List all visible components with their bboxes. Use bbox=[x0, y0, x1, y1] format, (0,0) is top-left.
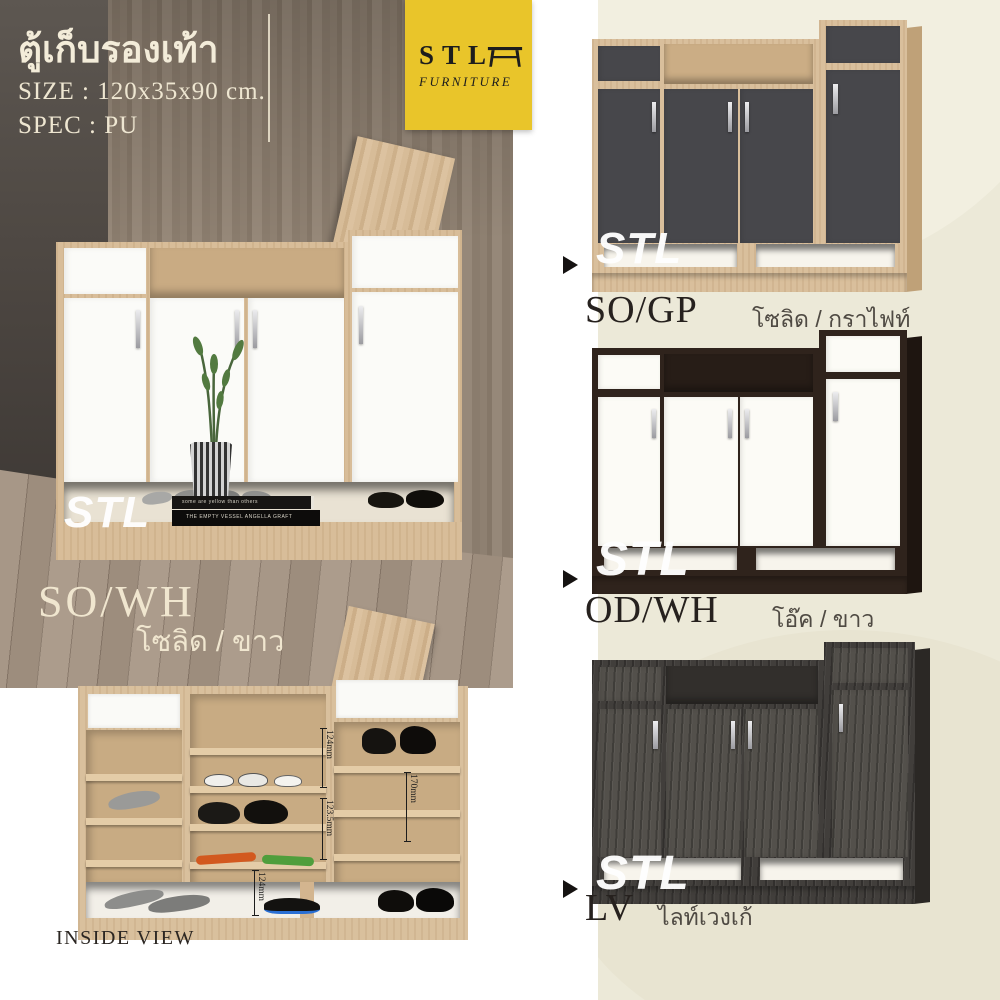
dimension-124mm: 124mm bbox=[322, 728, 323, 788]
door-left bbox=[598, 89, 660, 243]
variant-code: OD/WH bbox=[585, 588, 719, 632]
open-compartment bbox=[760, 858, 903, 880]
dark-shoe bbox=[368, 492, 404, 508]
table-icon bbox=[487, 44, 523, 68]
black-shoe bbox=[198, 802, 240, 824]
sneaker bbox=[274, 775, 302, 787]
book-spine: some are yellow than others bbox=[172, 496, 314, 509]
main-product-name-th: โซลิด / ขาว bbox=[136, 618, 284, 664]
dimension-123-5mm: 123.5mm bbox=[322, 798, 323, 860]
dimension-label: 124mm bbox=[256, 872, 266, 901]
sandal bbox=[264, 898, 320, 914]
stl-furniture-logo: STL FURNITURE bbox=[405, 0, 532, 130]
variant-code: LV bbox=[585, 886, 634, 930]
size-line: SIZE : 120x35x90 cm. bbox=[18, 78, 266, 106]
book-spine: THE EMPTY VESSEL ANGELLA GRAFT bbox=[172, 510, 320, 526]
dark-shoe bbox=[406, 490, 444, 508]
shelf bbox=[334, 854, 460, 861]
dimension-label: 123.5mm bbox=[324, 800, 334, 836]
variant-name-th: โอ๊ค / ขาว bbox=[772, 602, 874, 638]
door-handle bbox=[136, 310, 140, 348]
dimension-170mm: 170mm bbox=[406, 772, 407, 842]
inside-view-label: INSIDE VIEW bbox=[56, 927, 195, 950]
door-handle bbox=[728, 409, 732, 438]
striped-vase bbox=[188, 442, 234, 504]
top-drawer-panel-right bbox=[826, 336, 900, 372]
door-left bbox=[598, 709, 662, 857]
door-middle-2 bbox=[740, 397, 812, 546]
sneaker bbox=[238, 773, 268, 787]
stl-watermark: STL bbox=[596, 224, 682, 274]
title-divider-line bbox=[268, 14, 270, 142]
logo-subtitle: FURNITURE bbox=[419, 74, 512, 90]
shelf bbox=[190, 748, 326, 755]
shelf bbox=[86, 774, 182, 781]
door-handle bbox=[728, 102, 732, 132]
top-panel-white bbox=[88, 694, 180, 728]
furniture-poster: some are yellow than others THE EMPTY VE… bbox=[0, 0, 1000, 1000]
dimension-label: 170mm bbox=[408, 774, 418, 803]
white-column-divider bbox=[513, 0, 598, 1000]
door-right bbox=[352, 292, 458, 482]
cabinet-open-top-back bbox=[666, 666, 818, 704]
door-handle bbox=[652, 409, 656, 438]
door-handle bbox=[653, 721, 657, 750]
black-shoe bbox=[416, 888, 454, 912]
door-handle bbox=[833, 392, 837, 421]
cabinet-side-panel bbox=[907, 26, 922, 292]
book-stack: some are yellow than others THE EMPTY VE… bbox=[172, 496, 314, 526]
top-drawer-panel-left bbox=[598, 46, 660, 81]
cabinet-open-top-back bbox=[664, 354, 812, 392]
shelf bbox=[86, 860, 182, 867]
cabinet-side-panel bbox=[907, 336, 922, 594]
door-handle bbox=[652, 102, 656, 132]
top-drawer-panel-right bbox=[832, 648, 908, 683]
door-handle bbox=[839, 704, 843, 733]
door-left bbox=[64, 298, 146, 482]
arrow-right-icon bbox=[563, 570, 578, 588]
door-middle-2 bbox=[744, 709, 818, 857]
door-middle-2 bbox=[740, 89, 812, 243]
door-handle bbox=[359, 306, 363, 344]
stl-watermark: STL bbox=[596, 532, 690, 587]
stl-watermark: STL bbox=[64, 488, 150, 538]
top-panel-white bbox=[336, 680, 458, 718]
open-compartment bbox=[756, 548, 896, 570]
dimension-124mm-bottom: 124mm bbox=[254, 870, 255, 916]
door-left bbox=[598, 397, 660, 546]
cabinet-open-top-back bbox=[150, 248, 344, 298]
shelf bbox=[190, 824, 326, 831]
cabinet-open-top-back bbox=[664, 44, 812, 83]
sneaker bbox=[204, 774, 234, 787]
variant-name-th: ไลท์เวงเก้ bbox=[658, 900, 753, 936]
dimension-label: 124mm bbox=[324, 730, 334, 759]
door-handle bbox=[731, 721, 735, 750]
logo-brand: STL bbox=[419, 40, 494, 71]
shelf bbox=[190, 786, 326, 793]
top-drawer-panel-left bbox=[598, 355, 660, 389]
shelf bbox=[334, 810, 460, 817]
top-drawer-panel-right bbox=[826, 26, 900, 63]
poster-title: ตู้เก็บรองเท้า bbox=[18, 20, 219, 79]
spec-line: SPEC : PU bbox=[18, 112, 138, 140]
arrow-right-icon bbox=[563, 880, 578, 898]
shelf bbox=[334, 766, 460, 773]
door-handle bbox=[745, 102, 749, 132]
inside-view-cabinet bbox=[78, 686, 468, 940]
plant-icon bbox=[150, 330, 280, 448]
top-drawer-panel-left bbox=[64, 248, 146, 294]
top-drawer-panel-left bbox=[598, 667, 662, 701]
variant-code: SO/GP bbox=[585, 288, 698, 332]
cabinet-side-panel bbox=[915, 648, 930, 904]
open-compartment bbox=[756, 244, 896, 267]
black-shoe bbox=[244, 800, 288, 824]
door-handle bbox=[745, 409, 749, 438]
shelf bbox=[86, 818, 182, 825]
arrow-right-icon bbox=[563, 256, 578, 274]
door-handle bbox=[833, 84, 837, 114]
top-drawer-panel-right bbox=[352, 236, 458, 288]
door-handle bbox=[748, 721, 752, 750]
black-shoe bbox=[378, 890, 414, 912]
